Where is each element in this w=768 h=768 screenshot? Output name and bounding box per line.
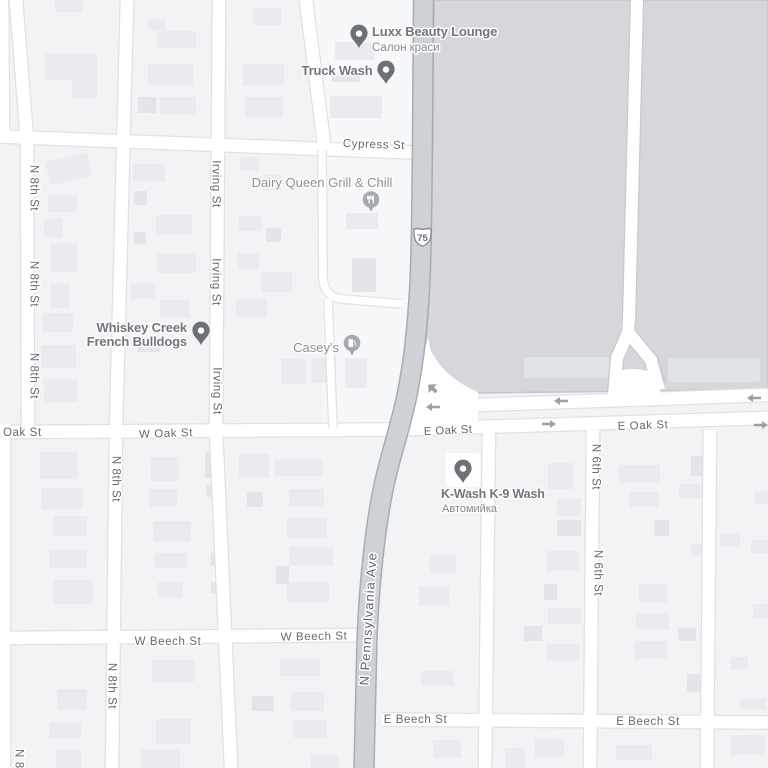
svg-text:E Oak St: E Oak St [617, 419, 668, 433]
svg-text:K-Wash K-9 Wash: K-Wash K-9 Wash [441, 487, 545, 501]
svg-text:Irving St: Irving St [210, 160, 222, 208]
svg-text:N 8th St: N 8th St [106, 663, 118, 710]
svg-text:Irving St: Irving St [211, 367, 223, 415]
svg-text:N 8th St: N 8th St [28, 165, 40, 212]
svg-text:E Beech St: E Beech St [616, 716, 680, 728]
svg-text:N 6th St: N 6th St [592, 550, 604, 597]
svg-text:N 6th St: N 6th St [590, 444, 602, 491]
svg-text:75: 75 [417, 233, 428, 244]
svg-text:W Oak St: W Oak St [139, 427, 194, 441]
svg-text:N 8: N 8 [13, 749, 25, 768]
svg-text:W Beech St: W Beech St [281, 630, 348, 643]
svg-text:Irving St: Irving St [210, 258, 222, 306]
svg-text:N 8th St: N 8th St [28, 261, 40, 308]
svg-text:Oak St: Oak St [3, 427, 42, 439]
svg-text:E Beech St: E Beech St [384, 714, 448, 726]
svg-text:Dairy Queen Grill & Chill: Dairy Queen Grill & Chill [252, 175, 393, 190]
svg-text:N 8th St: N 8th St [28, 353, 40, 400]
svg-text:Luxx Beauty Lounge: Luxx Beauty Lounge [372, 24, 497, 39]
svg-text:N 8th St: N 8th St [110, 456, 122, 503]
svg-text:Whiskey Creek: Whiskey Creek [96, 320, 187, 335]
svg-text:Салон краси: Салон краси [372, 42, 440, 54]
svg-text:Truck Wash: Truck Wash [302, 63, 373, 78]
svg-text:Cypress St: Cypress St [343, 138, 406, 152]
svg-text:Casey's: Casey's [293, 340, 339, 355]
svg-text:French Bulldogs: French Bulldogs [87, 334, 187, 349]
svg-text:W Beech St: W Beech St [135, 636, 202, 648]
svg-text:E Oak St: E Oak St [424, 424, 473, 439]
svg-text:Автомийка: Автомийка [442, 503, 498, 515]
